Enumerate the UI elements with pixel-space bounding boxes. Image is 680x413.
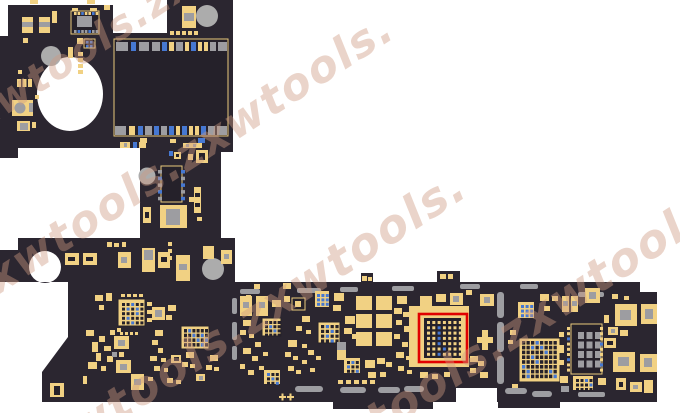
pcb-component (191, 42, 196, 51)
pcb-component (179, 264, 187, 270)
pcb-component (99, 336, 105, 342)
pcb-component (161, 126, 167, 135)
pcb-component (396, 320, 402, 325)
pcb-component (118, 340, 125, 346)
pcb-component (147, 302, 152, 322)
pcb-component (376, 332, 392, 346)
pcb-component (110, 330, 115, 335)
pcb-component (99, 305, 104, 310)
pcb-component (356, 314, 372, 328)
pcb-component (252, 356, 258, 361)
pcb-component (119, 352, 124, 357)
pcb-board-diagram: zxwtools.zxwtools.zxwtools.zxwtools.zxwt… (0, 0, 680, 413)
pcb-component (86, 257, 93, 261)
pcb-component (204, 42, 208, 51)
pcb-component (145, 126, 152, 135)
pcb-component (95, 295, 103, 301)
pcb-component (365, 360, 375, 368)
pcb-component (440, 274, 446, 279)
pcb-component (620, 330, 628, 336)
pcb-component (259, 366, 264, 370)
pcb-component (295, 386, 323, 392)
pcb-component (72, 8, 78, 11)
pcb-component (152, 340, 158, 345)
pcb-component (394, 334, 400, 339)
pcb-component (184, 13, 194, 21)
pcb-component (293, 356, 298, 360)
pcb-component (598, 378, 606, 385)
pcb-component (20, 123, 28, 130)
pcb-component (144, 250, 153, 260)
pcb-component (88, 362, 97, 369)
pcb-component (505, 388, 527, 394)
pcb-component (333, 305, 341, 311)
pcb-component (83, 376, 87, 384)
pcb-board-view: zxwtools.zxwtools.zxwtools.zxwtools.zxwt… (0, 0, 680, 413)
pcb-component (620, 310, 631, 320)
pcb-component (356, 296, 372, 310)
pcb-component (32, 122, 36, 128)
pcb-component (267, 373, 279, 385)
pcb-component (567, 327, 570, 372)
pcb-component (96, 353, 101, 361)
pcb-component (203, 246, 214, 259)
pcb-component (90, 8, 97, 11)
pcb-component (210, 42, 216, 51)
pcb-component (532, 391, 552, 397)
pcb-component (402, 342, 408, 347)
pcb-component (644, 358, 652, 367)
pcb-component (107, 242, 112, 247)
pcb-component (155, 310, 162, 317)
pcb-component (611, 329, 615, 333)
pcb-component (92, 342, 98, 352)
pcb-component (101, 366, 106, 371)
pcb-component (189, 197, 194, 202)
pcb-component (604, 315, 609, 323)
pcb-component (145, 212, 149, 218)
pcb-component (308, 350, 314, 355)
screw-hole (202, 258, 224, 280)
pcb-component (302, 316, 310, 322)
pcb-component (195, 193, 200, 197)
pcb-component (176, 42, 183, 51)
pcb-component (154, 126, 159, 135)
pcb-component (561, 386, 569, 392)
pcb-component (345, 316, 355, 324)
pcb-component (376, 296, 392, 310)
pcb-component (296, 370, 301, 374)
pcb-component (117, 328, 121, 332)
pcb-component (185, 42, 189, 51)
pcb-component (420, 296, 432, 306)
pcb-component (22, 22, 33, 27)
pcb-component (386, 362, 392, 367)
pcb-component (380, 372, 386, 377)
pcb-component (195, 203, 200, 207)
pcb-component (302, 360, 307, 364)
pcb-component (218, 42, 227, 51)
pcb-component (169, 42, 174, 51)
pcb-component (52, 11, 57, 23)
pcb-component (607, 341, 613, 345)
pcb-component (224, 254, 229, 259)
pcb-component (448, 274, 453, 279)
pcb-component (248, 370, 254, 375)
pcb-component (124, 143, 127, 147)
pcb-component (139, 142, 146, 148)
pcb-component (155, 330, 163, 336)
pcb-component (559, 360, 564, 365)
pcb-component (368, 372, 376, 378)
pcb-component (30, 0, 38, 4)
pcb-component (240, 364, 245, 369)
pcb-component (152, 42, 160, 51)
pcb-component (337, 342, 346, 350)
pcb-component (114, 243, 119, 247)
pcb-component (104, 346, 111, 351)
pcb-component (198, 42, 202, 51)
pcb-component (168, 242, 172, 260)
pcb-component (344, 328, 352, 334)
pcb-component (460, 284, 480, 289)
pcb-component (396, 352, 404, 358)
pcb-component (316, 356, 321, 360)
pcb-component (168, 305, 176, 311)
pcb-component (578, 392, 605, 397)
pcb-component (377, 358, 385, 364)
pcb-component (296, 326, 302, 331)
pcb-component (340, 387, 366, 393)
pcb-component (394, 308, 402, 314)
pcb-component (23, 38, 28, 43)
pcb-component (194, 187, 201, 213)
pcb-component (453, 296, 459, 302)
pcb-component (161, 257, 167, 262)
pcb-component (166, 315, 172, 320)
pcb-component (282, 394, 284, 401)
pcb-component (484, 297, 490, 303)
pcb-component (115, 126, 126, 135)
pcb-component (559, 345, 564, 353)
pcb-component (624, 296, 629, 300)
pcb-component (129, 126, 135, 135)
pcb-component (645, 309, 653, 319)
pcb-component (644, 380, 653, 393)
pcb-component (112, 352, 117, 357)
pcb-component (39, 22, 50, 27)
pcb-component (573, 376, 593, 390)
pcb-component (619, 382, 623, 387)
pcb-component (600, 327, 603, 372)
pcb-component (122, 242, 126, 247)
pcb-component (86, 330, 94, 336)
pcb-component (392, 286, 414, 291)
pcb-component (560, 376, 568, 383)
pcb-component (106, 293, 112, 301)
pcb-component (310, 368, 315, 372)
pcb-component (306, 330, 311, 334)
pcb-component (347, 361, 359, 373)
pcb-component (397, 296, 407, 304)
pcb-component (138, 126, 143, 135)
pcb-component (436, 294, 446, 302)
pcb-component (288, 340, 297, 347)
pcb-component (356, 332, 372, 346)
pcb-component (288, 366, 294, 371)
pcb-component (162, 42, 167, 51)
pcb-component (166, 209, 180, 225)
pcb-component (54, 386, 60, 395)
pcb-component (133, 142, 137, 148)
pcb-component (376, 314, 392, 328)
pcb-component (633, 385, 638, 389)
pcb-component (121, 257, 127, 263)
pcb-component (618, 357, 629, 366)
pcb-component (285, 352, 291, 357)
pcb-component (263, 352, 268, 356)
pcb-component (368, 277, 372, 281)
pcb-component (302, 344, 307, 348)
pcb-component (139, 42, 149, 51)
pcb-component (466, 290, 472, 295)
pcb-component (87, 0, 95, 4)
pcb-component (403, 312, 409, 317)
screw-hole (196, 5, 218, 27)
pcb-component (290, 394, 292, 401)
pcb-component (197, 217, 202, 221)
